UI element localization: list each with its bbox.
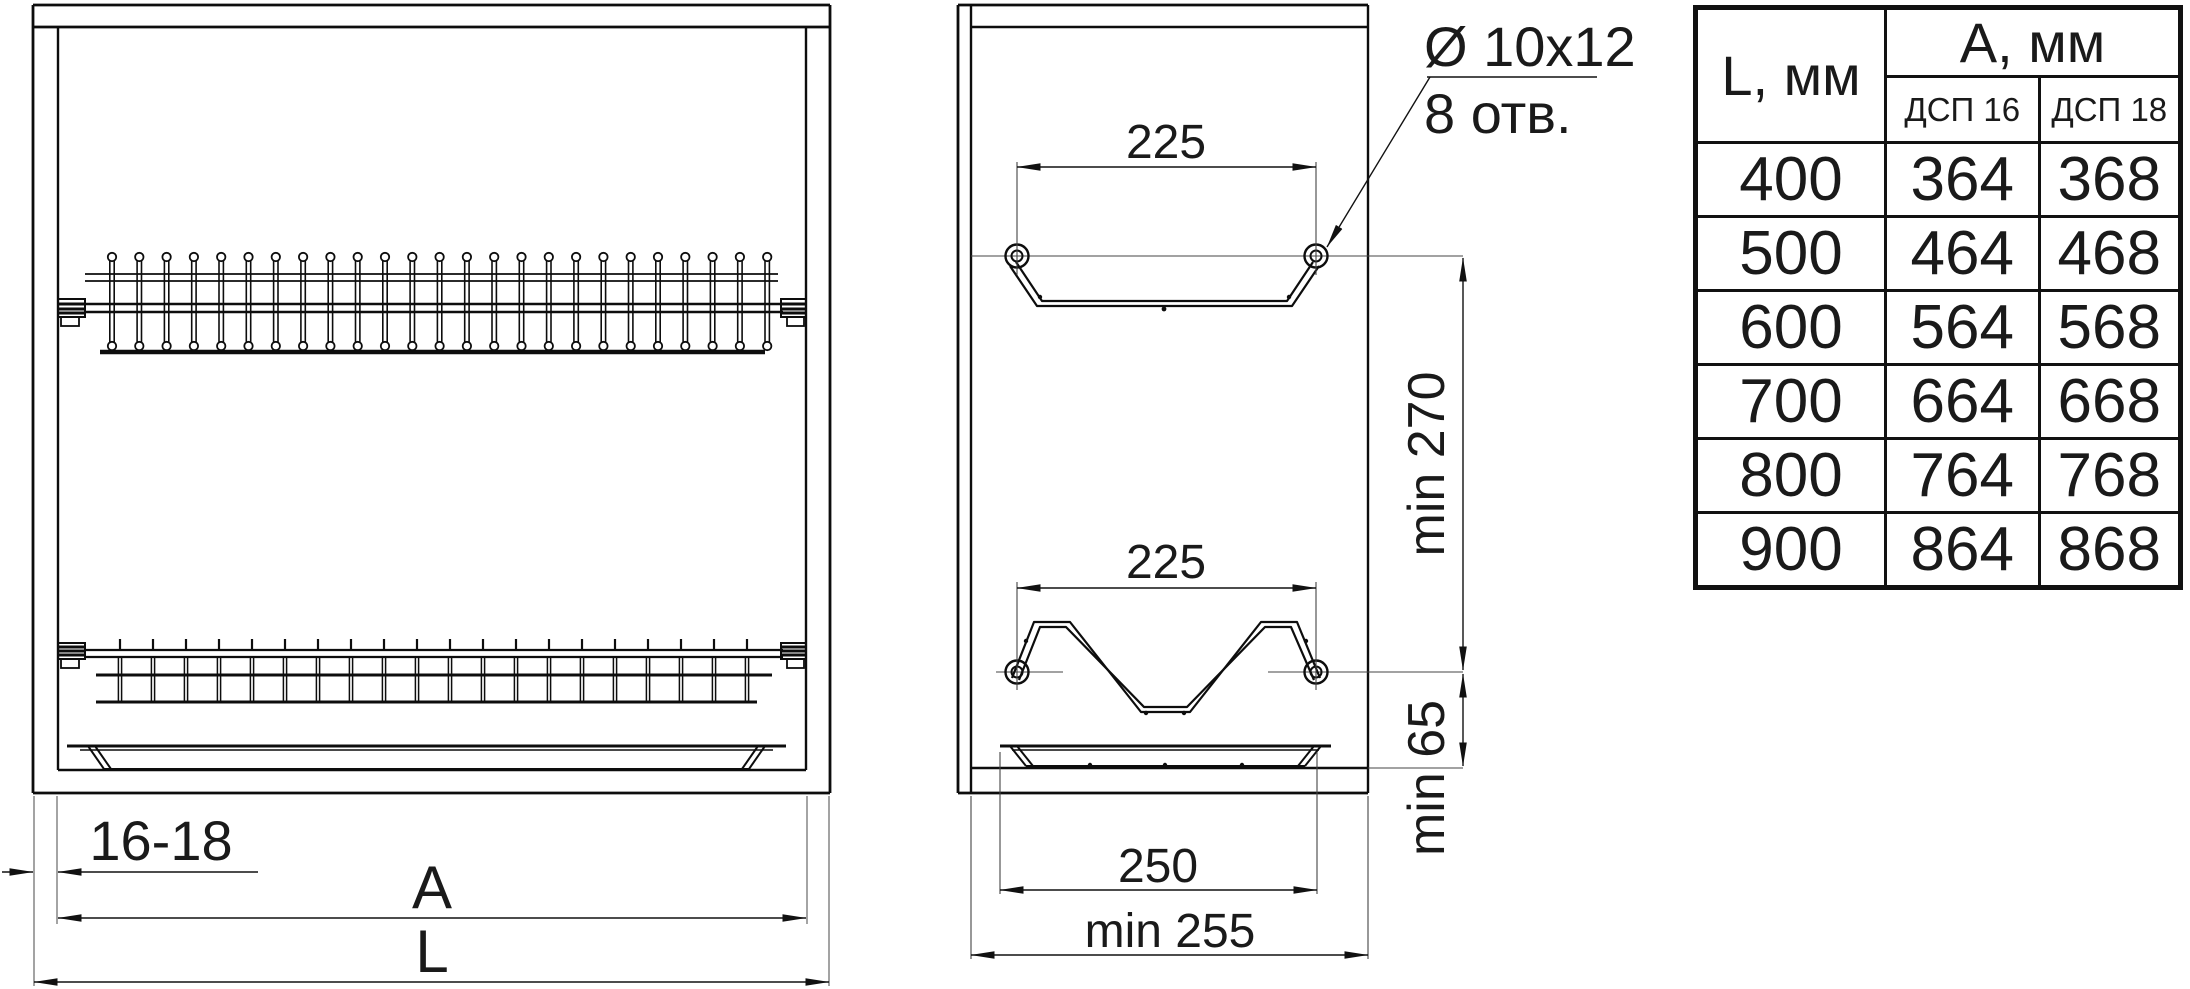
table-subheader-dsp16: ДСП 16 bbox=[1885, 77, 2039, 143]
table-row: 700 664 668 bbox=[1696, 365, 2181, 439]
table-row: 600 564 568 bbox=[1696, 291, 2181, 365]
cell-dsp16: 664 bbox=[1885, 365, 2039, 439]
dim-min-depth: min 255 bbox=[1085, 905, 1256, 958]
side-view-drip-tray bbox=[1000, 746, 1331, 767]
rack-wire-grid bbox=[108, 253, 772, 703]
lower-rack-left-bracket bbox=[58, 643, 85, 668]
table-subheader-dsp18: ДСП 18 bbox=[2039, 77, 2180, 143]
table-row: 800 764 768 bbox=[1696, 439, 2181, 513]
cell-l: 700 bbox=[1696, 365, 1886, 439]
cell-dsp18: 368 bbox=[2039, 143, 2180, 217]
side-view-lower-rack-profile bbox=[1012, 622, 1320, 715]
dim-tray-width: 250 bbox=[1118, 840, 1198, 893]
front-view-dimensions: 16-18 A L bbox=[2, 796, 829, 986]
cell-dsp18: 568 bbox=[2039, 291, 2180, 365]
cell-dsp16: 764 bbox=[1885, 439, 2039, 513]
upper-rack-right-bracket bbox=[781, 299, 806, 326]
table-row: 400 364 368 bbox=[1696, 143, 2181, 217]
cell-dsp16: 364 bbox=[1885, 143, 2039, 217]
cell-l: 400 bbox=[1696, 143, 1886, 217]
table-header-l: L, мм bbox=[1696, 8, 1886, 143]
callout-hole-spec: Ø 10x12 bbox=[1424, 15, 1636, 78]
dim-outer-width-l: L bbox=[415, 918, 448, 985]
hole-callout: Ø 10x12 8 отв. bbox=[1327, 15, 1636, 247]
table-header-a: A, мм bbox=[1885, 8, 2180, 77]
front-view-upper-plate-rack bbox=[58, 274, 806, 352]
lower-rack-right-bracket bbox=[781, 643, 806, 668]
mounting-holes bbox=[971, 245, 1463, 684]
dim-inner-width-a: A bbox=[412, 854, 452, 921]
dim-vertical-clearance: min 270 bbox=[1398, 372, 1456, 557]
upper-rack-left-bracket bbox=[58, 299, 85, 326]
technical-drawing-dish-rack: 16-18 A L bbox=[0, 0, 2190, 989]
front-view-drip-tray bbox=[67, 746, 786, 769]
cell-l: 800 bbox=[1696, 439, 1886, 513]
table-row: 500 464 468 bbox=[1696, 217, 2181, 291]
dim-upper-rack-span: 225 bbox=[1126, 116, 1206, 169]
cell-l: 600 bbox=[1696, 291, 1886, 365]
size-table: L, мм A, мм ДСП 16 ДСП 18 400 364 368 50… bbox=[1693, 5, 2183, 590]
dim-bottom-clearance: min 65 bbox=[1398, 700, 1456, 856]
dim-panel-thickness: 16-18 bbox=[89, 809, 232, 872]
side-view-dimensions: 225 225 min 270 min 65 250 min 255 bbox=[971, 116, 1463, 959]
table-row: 900 864 868 bbox=[1696, 513, 2181, 588]
callout-hole-count: 8 отв. bbox=[1424, 82, 1572, 145]
cell-dsp18: 868 bbox=[2039, 513, 2180, 588]
cell-dsp16: 464 bbox=[1885, 217, 2039, 291]
cell-dsp16: 564 bbox=[1885, 291, 2039, 365]
side-view-upper-rack-profile bbox=[1010, 262, 1319, 311]
cell-dsp18: 468 bbox=[2039, 217, 2180, 291]
front-view-lower-cup-rack bbox=[58, 643, 806, 702]
cell-l: 500 bbox=[1696, 217, 1886, 291]
dim-lower-rack-span: 225 bbox=[1126, 536, 1206, 589]
cell-dsp18: 668 bbox=[2039, 365, 2180, 439]
cell-l: 900 bbox=[1696, 513, 1886, 588]
cell-dsp16: 864 bbox=[1885, 513, 2039, 588]
cell-dsp18: 768 bbox=[2039, 439, 2180, 513]
